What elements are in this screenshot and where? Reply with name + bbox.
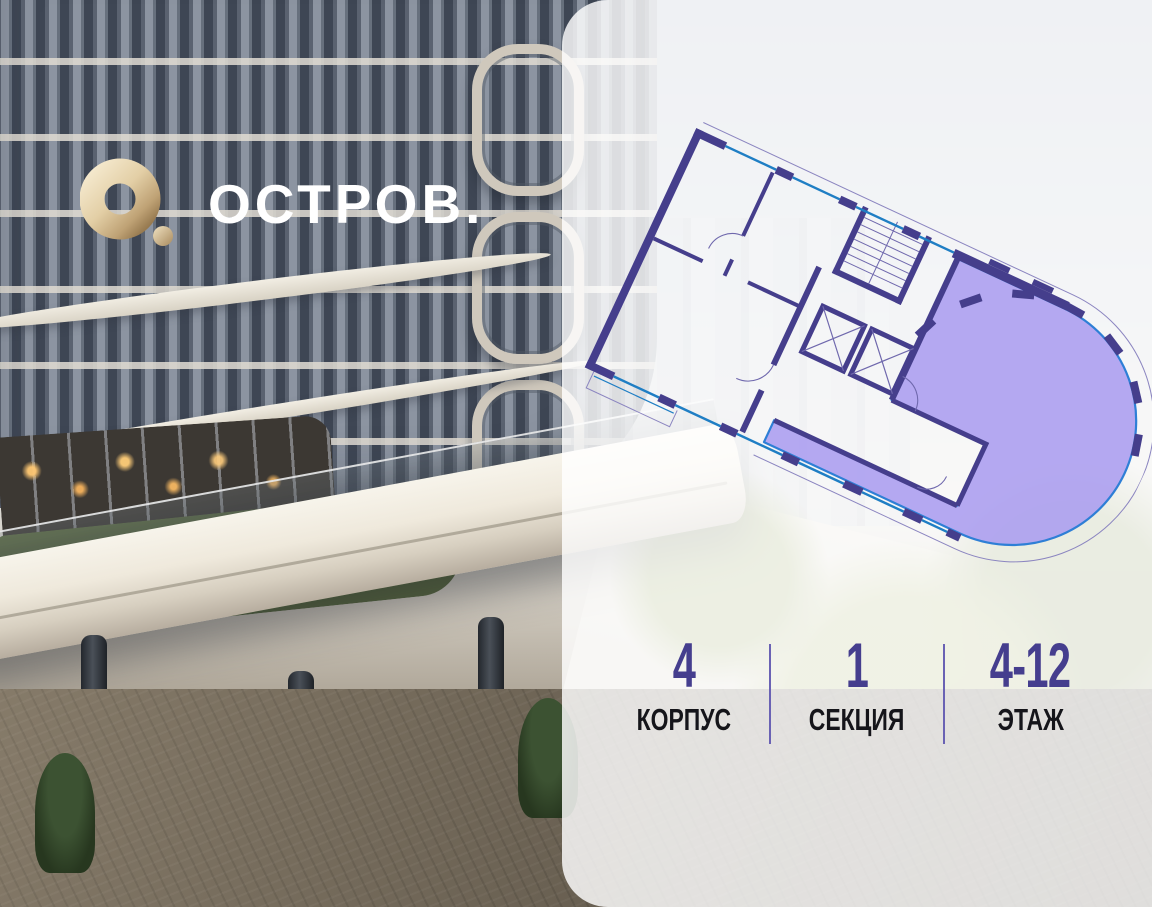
building-label: КОРПУС [620,704,748,735]
info-panel: 4 КОРПУС 1 СЕКЦИЯ 4-12 ЭТАЖ [562,0,1152,907]
floor-plan-svg [568,112,1152,621]
brand-logo[interactable]: ОСТРОВ. [80,158,484,250]
logo-ring [92,171,148,227]
floor-number: 4-12 [969,638,1091,694]
info-floor: 4-12 ЭТАЖ [945,638,1116,750]
page: ОСТРОВ. [0,0,1152,907]
section-label: СЕКЦИЯ [792,704,921,735]
brand-name: ОСТРОВ. [208,177,484,232]
brand-logo-icon [80,158,180,250]
building-number: 4 [667,638,701,694]
unit-info-row: 4 КОРПУС 1 СЕКЦИЯ 4-12 ЭТАЖ [598,638,1116,750]
planter-tree [35,753,95,873]
staircase [840,208,927,297]
logo-dot [153,226,173,246]
info-section: 1 СЕКЦИЯ [771,638,942,750]
floor-label: ЭТАЖ [986,704,1075,735]
section-number: 1 [840,638,874,694]
highlighted-apartment[interactable] [764,217,1152,585]
floor-plan [568,112,1152,621]
info-building: 4 КОРПУС [598,638,769,750]
